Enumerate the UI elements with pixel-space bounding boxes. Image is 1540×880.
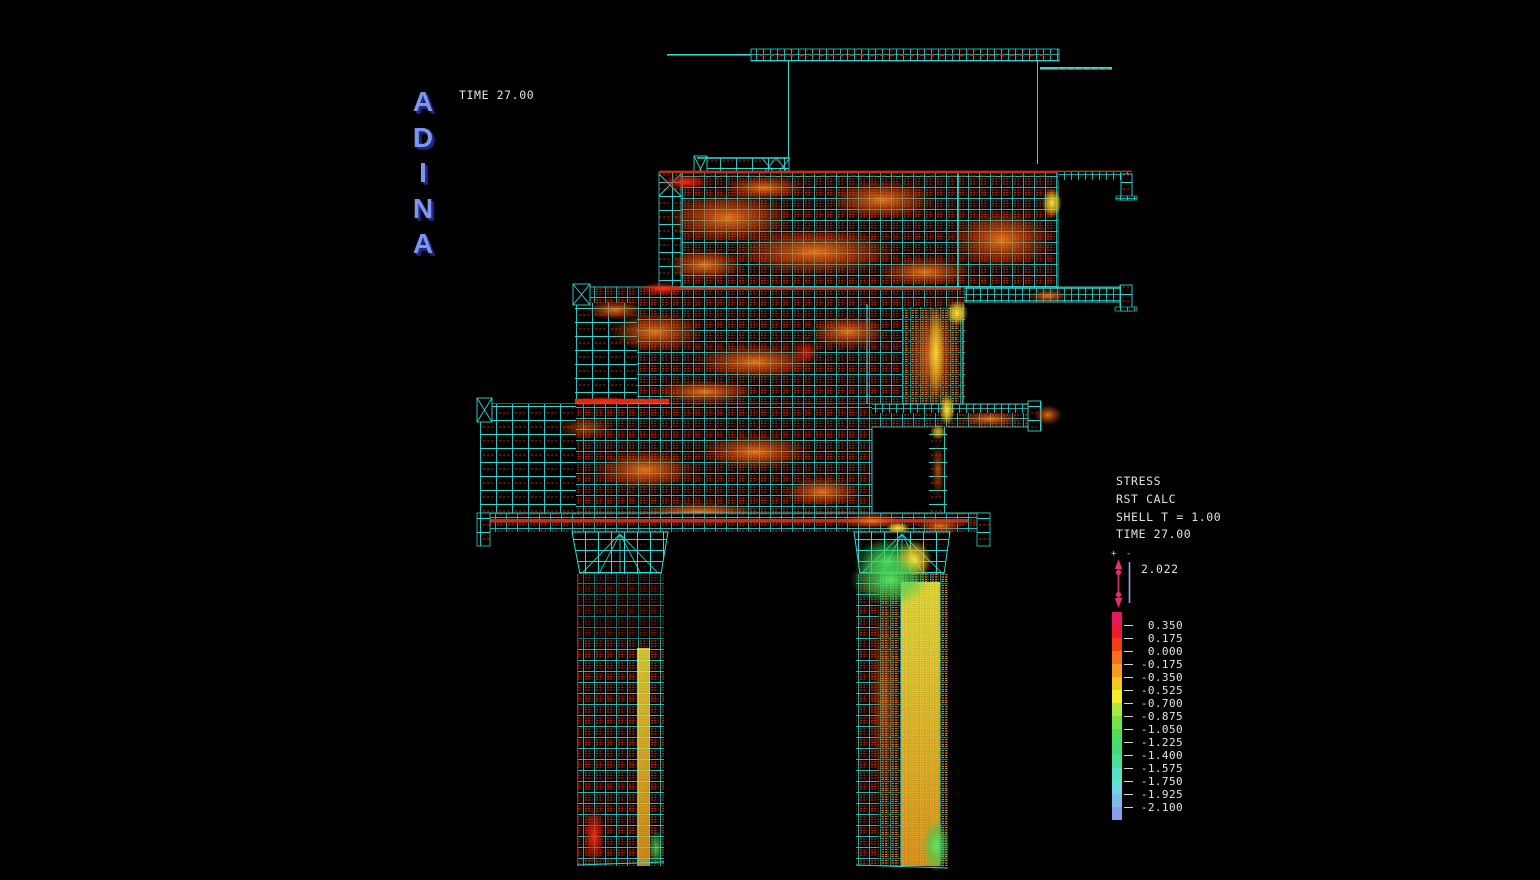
color-band: [1112, 612, 1122, 625]
left-pile: [577, 574, 664, 866]
color-band: [1112, 677, 1122, 690]
adina-postprocessor-viewport: ADINA TIME 27.00 STRESS RST CALC SHELL T…: [0, 0, 1540, 880]
logo-letter: A: [404, 226, 442, 262]
logo-letter: D: [404, 120, 442, 156]
color-band: [1112, 755, 1122, 768]
roof-level: [667, 49, 1112, 173]
logo-letter: N: [404, 191, 442, 227]
color-band: [1112, 768, 1122, 781]
adina-logo: ADINA: [404, 84, 442, 262]
legend-line-rstcalc: RST CALC: [1116, 491, 1221, 509]
scale-tick-label: -1.575: [1137, 762, 1183, 775]
scale-tick: [1124, 664, 1133, 665]
scale-tick-label: -1.750: [1137, 775, 1183, 788]
scale-tick-label: -0.350: [1137, 671, 1183, 684]
scale-tick: [1124, 807, 1133, 808]
color-band: [1112, 703, 1122, 716]
color-band: [1112, 781, 1122, 794]
scale-tick: [1124, 781, 1133, 782]
scale-tick: [1124, 677, 1133, 678]
right-pile: [850, 554, 950, 872]
scale-tick: [1124, 638, 1133, 639]
scale-tick: [1124, 768, 1133, 769]
scale-tick: [1124, 742, 1133, 743]
scale-tick-label: 0.175: [1137, 632, 1183, 645]
scale-tick: [1124, 755, 1133, 756]
scale-tick: [1124, 703, 1133, 704]
scale-tick-label: -2.100: [1137, 801, 1183, 814]
scale-tick: [1124, 794, 1133, 795]
displacement-arrow-icon: [1108, 557, 1136, 609]
time-label: TIME 27.00: [459, 88, 534, 102]
fea-mesh-plot: [0, 0, 1540, 880]
scale-tick: [1124, 651, 1133, 652]
scale-tick-label: -1.225: [1137, 736, 1183, 749]
scale-tick: [1124, 625, 1133, 626]
color-band: [1112, 664, 1122, 677]
scale-tick-label: -0.700: [1137, 697, 1183, 710]
scale-tick: [1124, 690, 1133, 691]
scale-tick-label: 0.000: [1137, 645, 1183, 658]
scale-tick-label: -0.525: [1137, 684, 1183, 697]
color-band: [1112, 690, 1122, 703]
level1-slab-block: [659, 171, 1137, 292]
max-displacement-marker: + - 2.022: [1108, 549, 1188, 609]
logo-letter: I: [404, 155, 442, 191]
basement-column: [929, 424, 947, 514]
color-band: [1112, 651, 1122, 664]
legend-line-time: TIME 27.00: [1116, 526, 1221, 544]
color-band: [1112, 742, 1122, 755]
color-bar: [1112, 612, 1122, 820]
logo-letter: A: [404, 84, 442, 120]
color-band: [1112, 794, 1122, 807]
color-band: [1112, 807, 1122, 820]
marker-value: 2.022: [1141, 562, 1179, 576]
scale-tick-label: 0.350: [1137, 619, 1183, 632]
scale-tick-label: -0.175: [1137, 658, 1183, 671]
stress-legend: STRESS RST CALC SHELL T = 1.00 TIME 27.0…: [1116, 473, 1221, 544]
scale-tick-label: -1.050: [1137, 723, 1183, 736]
scale-tick-label: -1.400: [1137, 749, 1183, 762]
stress-color-scale: 0.3500.1750.000-0.175-0.350-0.525-0.700-…: [1112, 612, 1202, 828]
legend-line-shell: SHELL T = 1.00: [1116, 509, 1221, 527]
color-band: [1112, 638, 1122, 651]
scale-tick: [1124, 716, 1133, 717]
legend-line-stress: STRESS: [1116, 473, 1221, 491]
scale-tick: [1124, 729, 1133, 730]
scale-tick-label: -1.925: [1137, 788, 1183, 801]
color-band: [1112, 625, 1122, 638]
scale-tick-label: -0.875: [1137, 710, 1183, 723]
color-band: [1112, 729, 1122, 742]
color-band: [1112, 716, 1122, 729]
level3-wall-block: [477, 398, 872, 530]
